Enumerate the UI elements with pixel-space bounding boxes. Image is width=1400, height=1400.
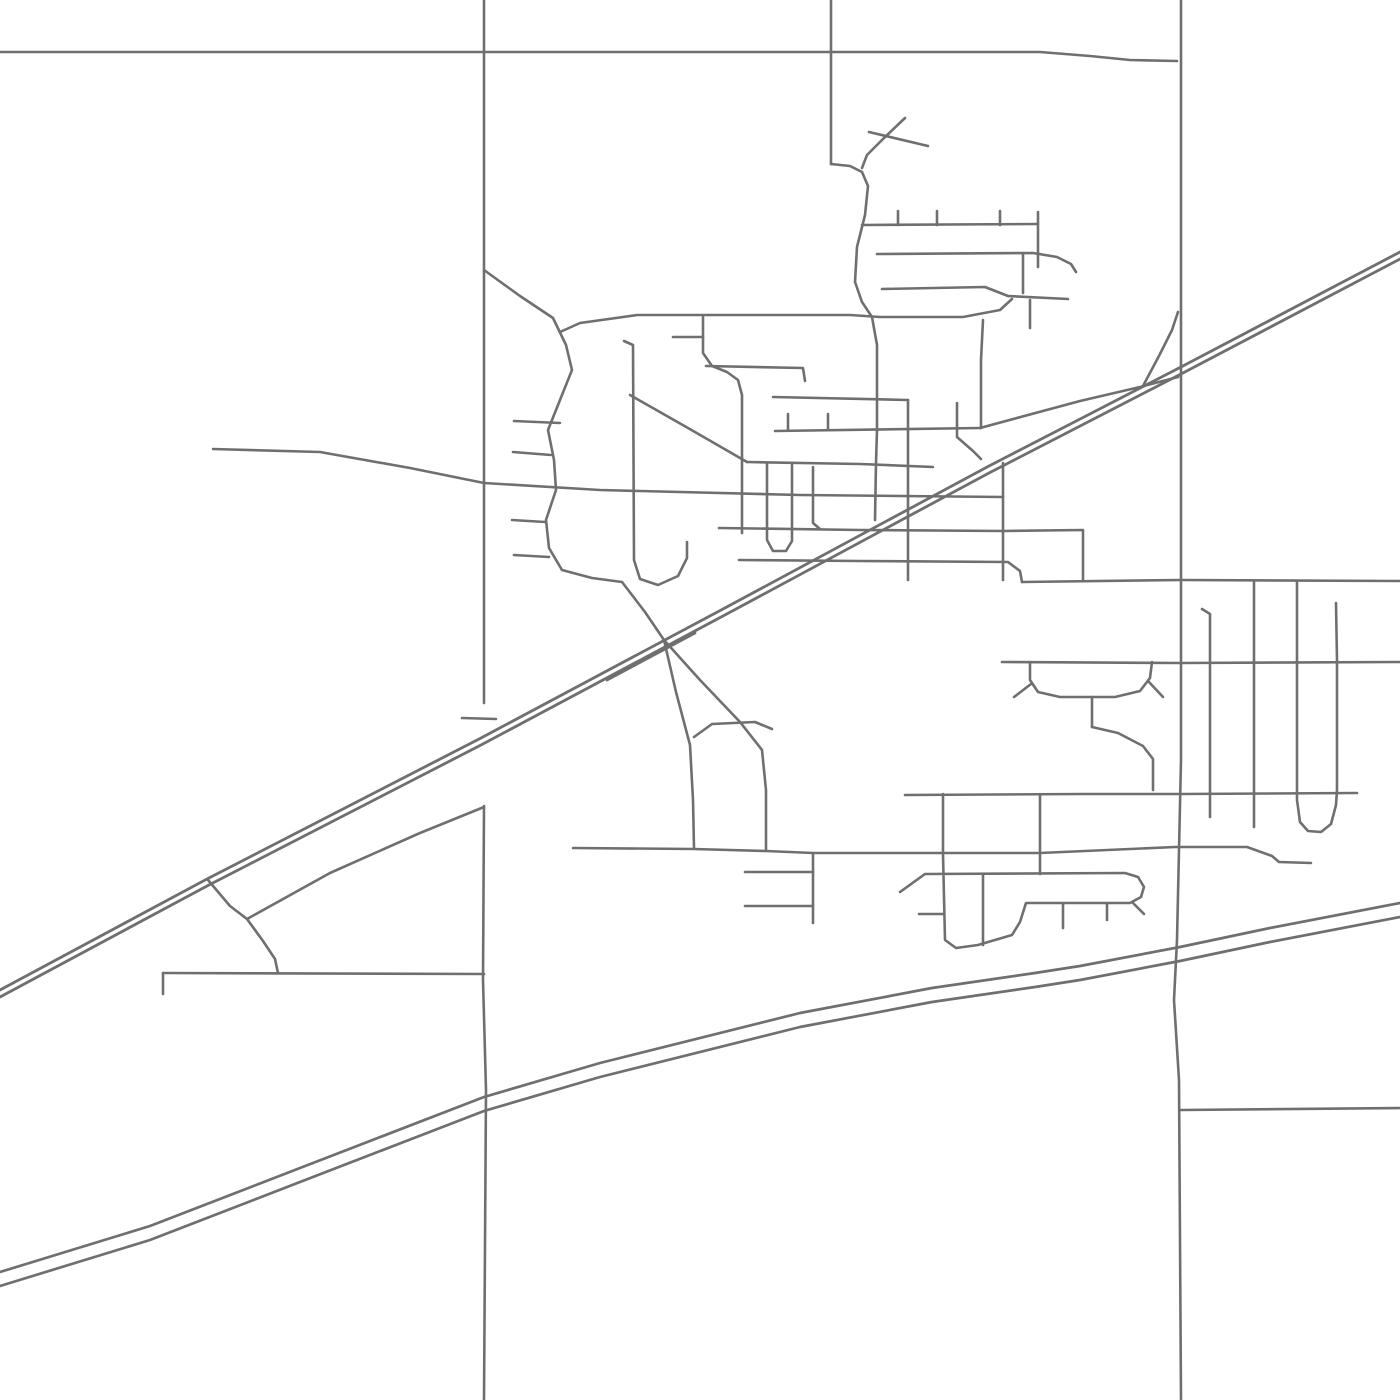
ne-hook-road (1143, 312, 1178, 386)
tick-718 (462, 718, 496, 719)
diagonal-street (630, 395, 747, 462)
creek-road-spur (694, 722, 772, 737)
street-663 (1002, 662, 1400, 663)
ne-street-3 (882, 287, 1008, 296)
railroad-branch-road (208, 880, 278, 973)
west-section-road-lower (483, 806, 486, 1400)
east-comb-vertical-1210 (1202, 609, 1210, 817)
vertical-957 (957, 403, 981, 459)
east-section-road (1174, 0, 1181, 1400)
street-398 (773, 397, 908, 400)
vertical-767-u-turn (767, 464, 792, 551)
ne-street-1 (862, 224, 1038, 225)
street-map-canvas (0, 0, 1400, 1400)
street-431 (775, 428, 980, 431)
cul-de-sac-tick-left (1014, 684, 1031, 697)
ne-s-curve-road (831, 164, 877, 520)
creek-stub-1 (514, 421, 560, 423)
ne-x-road-a (862, 118, 905, 168)
s-curve-connector (1092, 727, 1153, 790)
street-1110 (1181, 1108, 1400, 1110)
creek-stub-2 (513, 452, 551, 455)
west-main-street (213, 449, 1003, 497)
street-975 (163, 973, 484, 974)
railroad-rail-2 (0, 259, 1400, 997)
street-map (0, 0, 1400, 1400)
creek-stub-3 (512, 520, 545, 522)
street-983 (981, 320, 983, 428)
railroad-siding (607, 633, 695, 680)
vertical-813 (813, 467, 820, 529)
creek-road-south-branch (664, 640, 694, 848)
top-section-road (0, 52, 1177, 61)
cul-de-sac-loop (1030, 662, 1152, 697)
railroad-rail-1 (0, 252, 1400, 990)
street-463 (747, 462, 933, 467)
creek-road-south-east-branch (664, 640, 766, 850)
cul-de-sac-tick-right (1149, 682, 1163, 697)
vertical-703-jog (703, 317, 742, 533)
north-town-street (560, 299, 1012, 332)
se-loop-stub-3 (1133, 903, 1144, 914)
se-loop-road (900, 854, 1144, 948)
street-527 (719, 528, 1083, 580)
sw-diagonal-road (247, 807, 484, 919)
street-580 (1022, 580, 1400, 582)
ne-street-4 (1008, 296, 1068, 299)
vertical-634-u-turn (624, 341, 687, 585)
street-794 (905, 793, 1357, 795)
ne-street-2 (877, 253, 1076, 272)
creek-stub-4 (514, 555, 549, 557)
